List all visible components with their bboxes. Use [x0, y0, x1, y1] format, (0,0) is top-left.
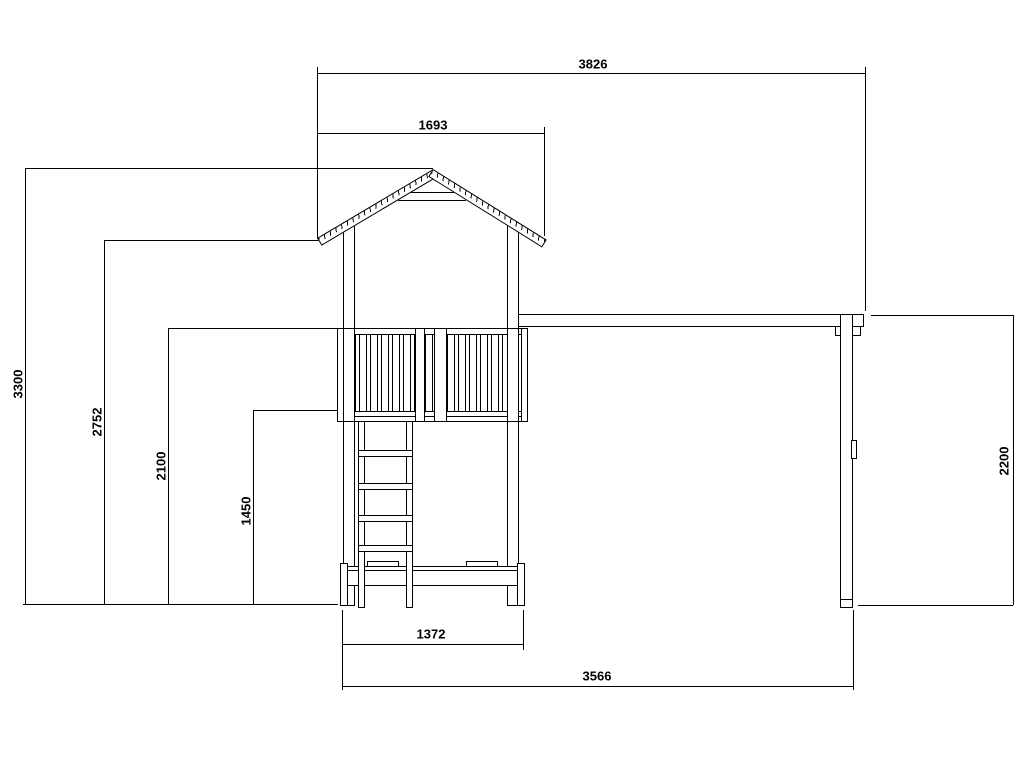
railing-end-cap [521, 328, 528, 422]
dimension-label-swing-frame-height: 2200 [997, 447, 1012, 476]
ladder-rung [358, 450, 413, 457]
roof-shingle-hatch [431, 170, 545, 243]
dimension-line-overall-width [317, 73, 865, 74]
swing-hook [851, 440, 857, 459]
drawing-canvas: 3826 1693 3300 2752 2100 1450 1372 3566 … [0, 0, 1024, 768]
ladder-rail-right [406, 417, 413, 608]
ladder-rung [358, 545, 413, 552]
seat-board [466, 561, 498, 567]
roof-shingle-hatch [318, 170, 434, 241]
extension-line [523, 610, 524, 650]
dimension-label-overall-width: 3826 [579, 57, 608, 72]
ladder-rung [358, 483, 413, 490]
dimension-line-swing-frame-height [1013, 315, 1014, 605]
roof-panel-left [317, 169, 438, 246]
extension-line [871, 315, 1013, 316]
extension-line [317, 67, 318, 239]
extension-line [865, 67, 866, 311]
railing-mid-post [415, 328, 425, 422]
sandbox-side-board [517, 563, 525, 606]
extension-line [544, 127, 545, 236]
swing-beam [518, 314, 864, 327]
extension-line [342, 610, 343, 690]
extension-line [253, 410, 341, 411]
railing-top-rail [337, 328, 528, 335]
sandbox-side-board [340, 563, 348, 606]
swing-post [840, 314, 853, 608]
sandbox-board-line [341, 570, 525, 571]
dimension-label-railing-height: 2100 [154, 452, 169, 481]
railing-end-cap [337, 328, 344, 422]
railing-post [507, 328, 519, 422]
dimension-label-footprint-width: 3566 [583, 669, 612, 684]
dimension-line-roof-width [317, 133, 545, 134]
dimension-line-footprint-width [342, 686, 853, 687]
dimension-label-roof-width: 1693 [419, 118, 448, 133]
beam-bracket [852, 326, 861, 336]
platform-floor [337, 411, 528, 422]
ladder-rail-left [358, 417, 365, 608]
ladder-rung [358, 515, 413, 522]
railing-mid-post [434, 328, 447, 422]
dimension-label-tower-base-width: 1372 [417, 627, 446, 642]
dimension-line-tower-base-width [342, 644, 523, 645]
dimension-label-eave-height: 2752 [90, 408, 105, 437]
extension-line [168, 328, 338, 329]
sandbox-frame [341, 566, 525, 586]
dimension-label-total-height: 3300 [11, 370, 26, 399]
seat-board [367, 561, 399, 567]
gable-collar-tie [398, 200, 466, 201]
extension-line [25, 168, 433, 169]
railing-post [343, 328, 355, 422]
swing-post-foot-line [840, 599, 853, 600]
floor-board-line [337, 416, 528, 417]
extension-line [853, 610, 854, 690]
ground-reference-line [23, 604, 338, 605]
railing-balusters [355, 333, 507, 417]
extension-line [858, 605, 1013, 606]
dimension-label-platform-height: 1450 [239, 497, 254, 526]
extension-line [104, 240, 320, 241]
roof-panel-right [428, 169, 547, 247]
